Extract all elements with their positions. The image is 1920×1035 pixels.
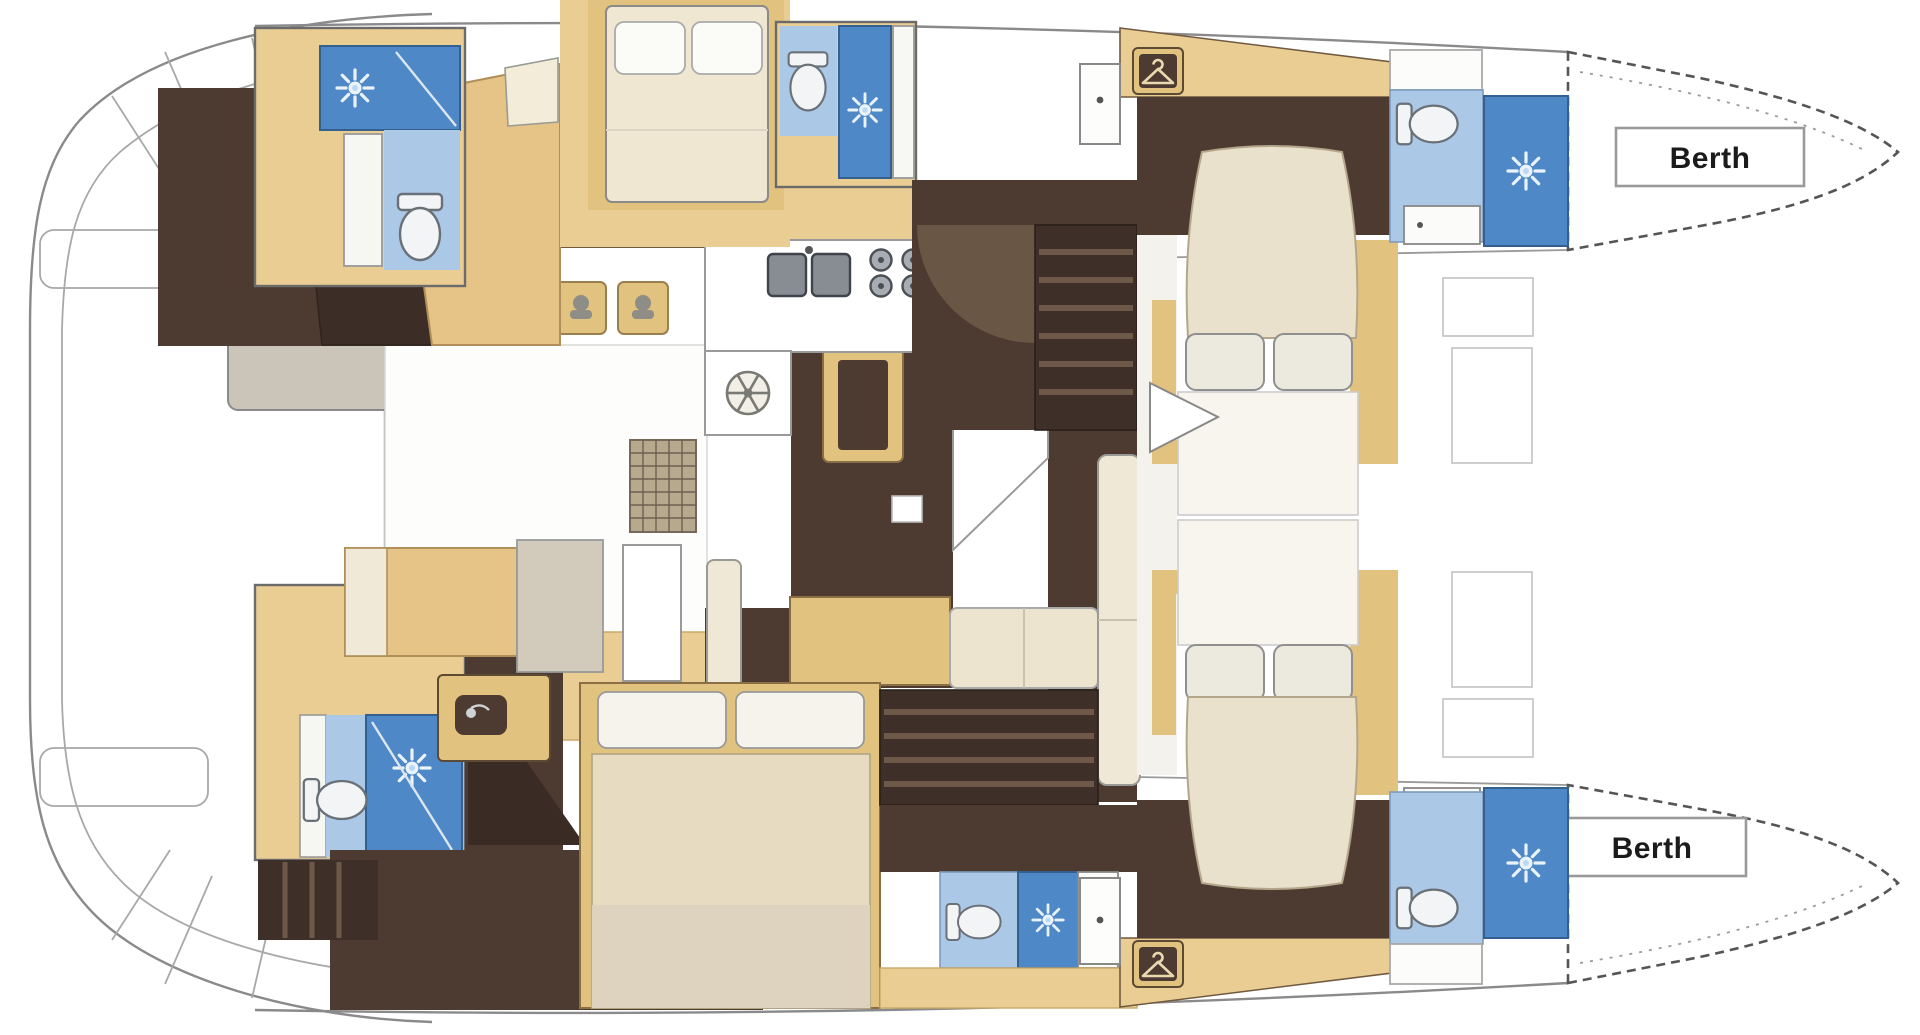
stern-step-line <box>165 876 212 984</box>
head-door <box>1390 50 1482 90</box>
bed-linen <box>592 905 870 1008</box>
floor-hatch <box>630 440 696 532</box>
sink-icon <box>466 708 476 718</box>
stairway <box>880 690 1098 805</box>
sink-vanity <box>1080 878 1120 964</box>
sofa-bench-wood <box>790 597 950 685</box>
forepeak-shelf <box>1452 572 1532 687</box>
forepeak-shelf <box>1443 278 1533 336</box>
upper-aft-head <box>255 28 465 286</box>
berth-label-fore: Berth <box>1616 128 1804 186</box>
seat-cushion <box>517 540 603 672</box>
shower-icon <box>1508 845 1544 881</box>
toilet-icon <box>1397 104 1458 144</box>
bed-pillow <box>345 548 387 656</box>
bed-pillow <box>1274 334 1352 390</box>
bed-linen <box>1178 520 1358 645</box>
bow-sections: Berth Berth <box>1558 52 1898 983</box>
lower-fore-head <box>1390 788 1568 984</box>
stair-landing <box>880 805 1137 872</box>
bed-pillow <box>1186 334 1264 390</box>
floor-plan-canvas: Berth Berth <box>0 0 1920 1035</box>
bed-pillow <box>598 692 726 748</box>
sink-vanity <box>1080 64 1120 144</box>
head-door <box>1390 944 1482 984</box>
stern-step-line <box>112 850 170 940</box>
hanging-locker <box>1133 941 1183 987</box>
transom-step <box>40 748 208 806</box>
stairway <box>1035 225 1137 430</box>
upper-mid-head <box>776 22 916 187</box>
berth-label-text: Berth <box>1612 832 1693 865</box>
lower-stairs <box>880 690 1137 872</box>
toilet-icon <box>789 52 828 110</box>
shower-icon <box>337 70 373 106</box>
dining-table <box>823 348 903 462</box>
bed-rail-wood <box>1152 575 1176 735</box>
shower-tray <box>1404 206 1480 244</box>
forepeak-shelf <box>1452 348 1532 463</box>
hull-floor-wood <box>880 968 1137 1008</box>
bed-pillow <box>692 22 762 74</box>
shower-icon <box>1508 153 1544 189</box>
toilet-icon <box>304 779 367 821</box>
shower-door <box>893 26 914 178</box>
cabin-floor <box>158 88 258 346</box>
toilet-icon <box>946 904 1000 940</box>
bed-pillow <box>736 692 864 748</box>
shower-icon <box>1033 905 1064 936</box>
fore-bow-starboard <box>1568 785 1898 983</box>
table-base <box>892 496 922 522</box>
upper-mid-cabin <box>560 0 790 247</box>
galley-stools <box>556 282 668 334</box>
upper-stairs <box>912 180 1137 430</box>
helm-wheel-icon <box>727 372 769 414</box>
hanging-locker <box>1133 48 1183 94</box>
shower-icon <box>849 94 881 126</box>
berth-label-text: Berth <box>1670 142 1751 175</box>
bed-pillow <box>1186 645 1264 701</box>
bed-pillow <box>615 22 685 74</box>
lower-mid-cabin <box>580 683 880 1008</box>
sink-icon <box>1417 222 1423 228</box>
upper-fore-head <box>1390 50 1568 246</box>
berth-label-aft: Berth <box>1558 818 1746 876</box>
toilet-icon <box>398 194 442 260</box>
sink-icon <box>1097 97 1104 104</box>
floor-plan: Berth Berth <box>0 0 1920 1035</box>
locker-steps <box>258 860 378 940</box>
bed-duvet <box>1187 146 1358 338</box>
cabin-door <box>623 545 681 681</box>
bed-pillow <box>1274 645 1352 701</box>
toilet-icon <box>1397 888 1458 928</box>
forepeak-shelf <box>1443 699 1533 757</box>
bed-pillow <box>505 58 558 126</box>
sink-icon <box>1097 917 1104 924</box>
head-cabinet <box>344 134 382 266</box>
bed-duvet <box>1187 697 1358 889</box>
sink-cabinet <box>438 675 550 761</box>
